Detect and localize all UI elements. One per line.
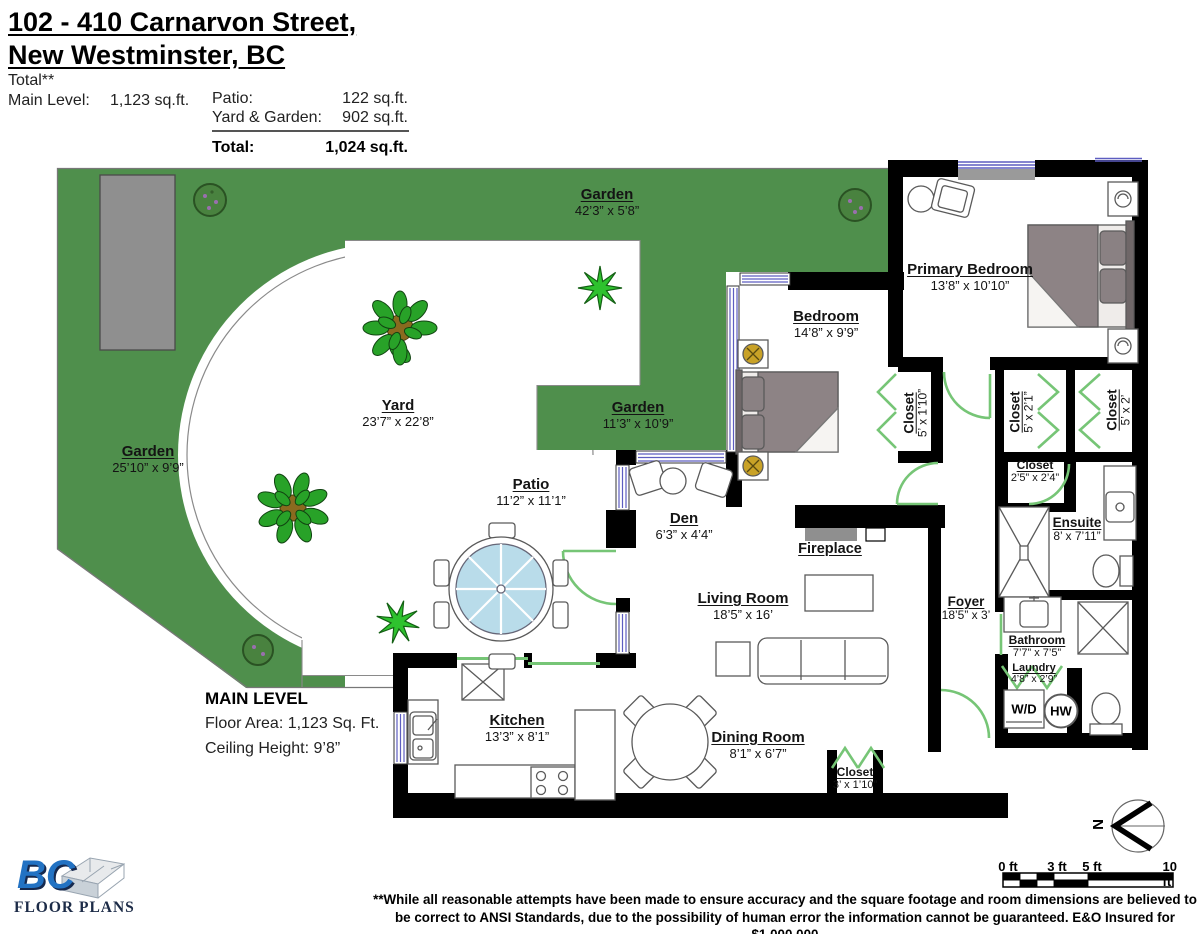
room-label-garden-mid: Garden11’3” x 10’9” bbox=[603, 400, 674, 431]
kitchen-sink bbox=[410, 712, 437, 760]
room-label-fireplace: Fireplace bbox=[798, 541, 862, 557]
room-label-closet-entry: Closet3’ x 1’10” bbox=[833, 766, 877, 792]
disclaimer-line2: be correct to ANSI Standards, due to the… bbox=[370, 909, 1200, 934]
room-label-garden-left: Garden25’10” x 9’9” bbox=[112, 444, 184, 475]
room-label-yard: Yard23’7” x 22’8” bbox=[362, 398, 434, 429]
shower bbox=[1078, 602, 1128, 654]
toilet-icon bbox=[1090, 693, 1122, 735]
main-level-label: Main Level: bbox=[8, 92, 90, 110]
fireplace-hearth bbox=[866, 528, 885, 541]
side-table bbox=[660, 468, 686, 494]
disclaimer-line1: **While all reasonable attempts have bee… bbox=[370, 891, 1200, 909]
garden-planter bbox=[100, 175, 175, 350]
room-label-den: Den6’3” x 4’4” bbox=[655, 511, 712, 542]
yard-garden-value: 902 sq.ft. bbox=[318, 109, 408, 127]
north-label: N bbox=[1090, 819, 1107, 830]
bush-icon bbox=[839, 189, 871, 221]
room-label-closet-b: Closet5’ x 2’ bbox=[1105, 389, 1134, 430]
stove bbox=[531, 767, 575, 798]
ceiling-height-text: Ceiling Height: 9’8” bbox=[205, 736, 379, 761]
north-arrow-icon bbox=[1111, 800, 1165, 852]
star-plant-icon bbox=[578, 266, 622, 310]
dining-table bbox=[632, 704, 708, 780]
sink-icon bbox=[1106, 492, 1134, 522]
room-label-bedroom: Bedroom14’8” x 9’9” bbox=[793, 309, 859, 340]
window-primary-top bbox=[958, 160, 1035, 180]
total-label: Total: bbox=[212, 139, 254, 157]
patio-label: Patio: bbox=[212, 90, 253, 108]
room-label-closet-hall: Closet2’5” x 2’4” bbox=[1011, 459, 1059, 485]
patio-value: 122 sq.ft. bbox=[318, 90, 408, 108]
scale-label-10: 10 ft bbox=[1163, 859, 1188, 889]
total-note: Total** bbox=[8, 72, 54, 90]
sink-icon bbox=[1020, 596, 1048, 627]
room-label-ensuite: Ensuite8’ x 7’11” bbox=[1053, 515, 1102, 544]
address-line2: New Westminster, BC bbox=[8, 40, 285, 70]
side-table bbox=[716, 642, 750, 676]
room-label-primary-bedroom: Primary Bedroom13’8” x 10’10” bbox=[907, 262, 1033, 293]
page-title: 102 - 410 Carnarvon Street, New Westmins… bbox=[8, 6, 356, 72]
room-label-garden-top: Garden42’3” x 5’8” bbox=[575, 187, 639, 218]
window-living-left bbox=[616, 612, 629, 654]
main-level-value: 1,123 sq.ft. bbox=[110, 92, 189, 110]
window-bedroom-top bbox=[740, 273, 790, 285]
room-label-laundry: Laundry4’8” x 2’9” bbox=[1011, 662, 1057, 686]
floor-plan-page: 102 - 410 Carnarvon Street, New Westmins… bbox=[0, 0, 1200, 934]
scale-label-3: 3 ft bbox=[1047, 859, 1067, 874]
room-label-closet-bedroom: Closet5’ x 1’10” bbox=[902, 389, 931, 437]
toilet-icon bbox=[1093, 555, 1133, 587]
window-primary-corner bbox=[1095, 159, 1142, 162]
disclaimer: **While all reasonable attempts have bee… bbox=[370, 891, 1200, 934]
main-level-block: MAIN LEVEL Floor Area: 1,123 Sq. Ft. Cei… bbox=[205, 686, 379, 761]
bush-icon bbox=[194, 184, 226, 216]
logo-floor-plans-text: FLOOR PLANS bbox=[14, 899, 135, 917]
window-den-top bbox=[636, 451, 726, 463]
kitchen-island bbox=[575, 710, 615, 800]
bed-bedroom bbox=[736, 370, 838, 454]
sofa bbox=[758, 638, 888, 684]
room-label-bathroom: Bathroom7’7” x 7’5” bbox=[1009, 634, 1066, 660]
fireplace-insert bbox=[805, 528, 857, 541]
coffee-table bbox=[805, 575, 873, 611]
window-den-left bbox=[616, 465, 629, 510]
shower bbox=[999, 507, 1049, 597]
yard-garden-label: Yard & Garden: bbox=[212, 109, 322, 127]
room-label-dining-room: Dining Room8’1” x 6’7” bbox=[711, 730, 804, 761]
side-table bbox=[908, 186, 934, 212]
scale-bar bbox=[1003, 873, 1173, 887]
room-label-foyer: Foyer18’5” x 3’ bbox=[942, 594, 991, 623]
hot-water-label: HW bbox=[1050, 704, 1072, 719]
scale-label-0: 0 ft bbox=[998, 859, 1018, 874]
bush-icon bbox=[243, 635, 273, 665]
room-label-closet-a: Closet5’ x 2’1” bbox=[1008, 391, 1037, 433]
floor-area-text: Floor Area: 1,123 Sq. Ft. bbox=[205, 711, 379, 736]
room-label-living-room: Living Room18’5” x 16’ bbox=[698, 591, 789, 622]
scale-label-5: 5 ft bbox=[1082, 859, 1102, 874]
logo-bc-text: BC bbox=[17, 855, 75, 895]
main-level-title: MAIN LEVEL bbox=[205, 686, 379, 711]
bed-primary bbox=[1028, 221, 1134, 331]
room-label-kitchen: Kitchen13’3” x 8’1” bbox=[485, 713, 549, 744]
address-line1: 102 - 410 Carnarvon Street, bbox=[8, 7, 356, 37]
room-label-patio: Patio11’2” x 11’1” bbox=[496, 477, 566, 508]
total-value: 1,024 sq.ft. bbox=[318, 139, 408, 157]
window-kitchen-left bbox=[394, 712, 407, 764]
washer-dryer-label: W/D bbox=[1011, 702, 1036, 717]
summary-divider bbox=[212, 130, 409, 132]
